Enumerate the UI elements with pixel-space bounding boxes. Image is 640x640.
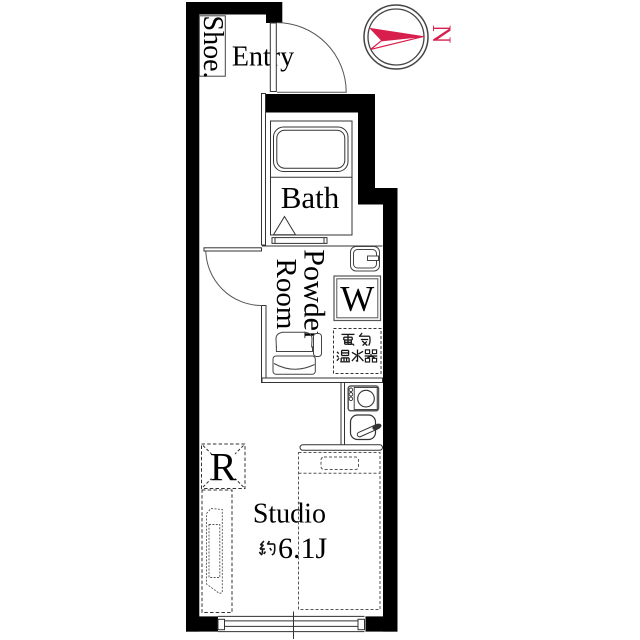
svg-text:N: N bbox=[427, 25, 456, 44]
svg-text:R: R bbox=[210, 445, 237, 490]
svg-text:Shoe.: Shoe. bbox=[197, 16, 228, 79]
svg-text:6.1J: 6.1J bbox=[278, 532, 328, 565]
svg-text:Bath: Bath bbox=[281, 180, 340, 215]
svg-text:W: W bbox=[340, 278, 374, 318]
svg-text:Room: Room bbox=[270, 259, 302, 330]
svg-text:Studio: Studio bbox=[253, 499, 326, 530]
svg-text:Entry: Entry bbox=[232, 42, 294, 73]
